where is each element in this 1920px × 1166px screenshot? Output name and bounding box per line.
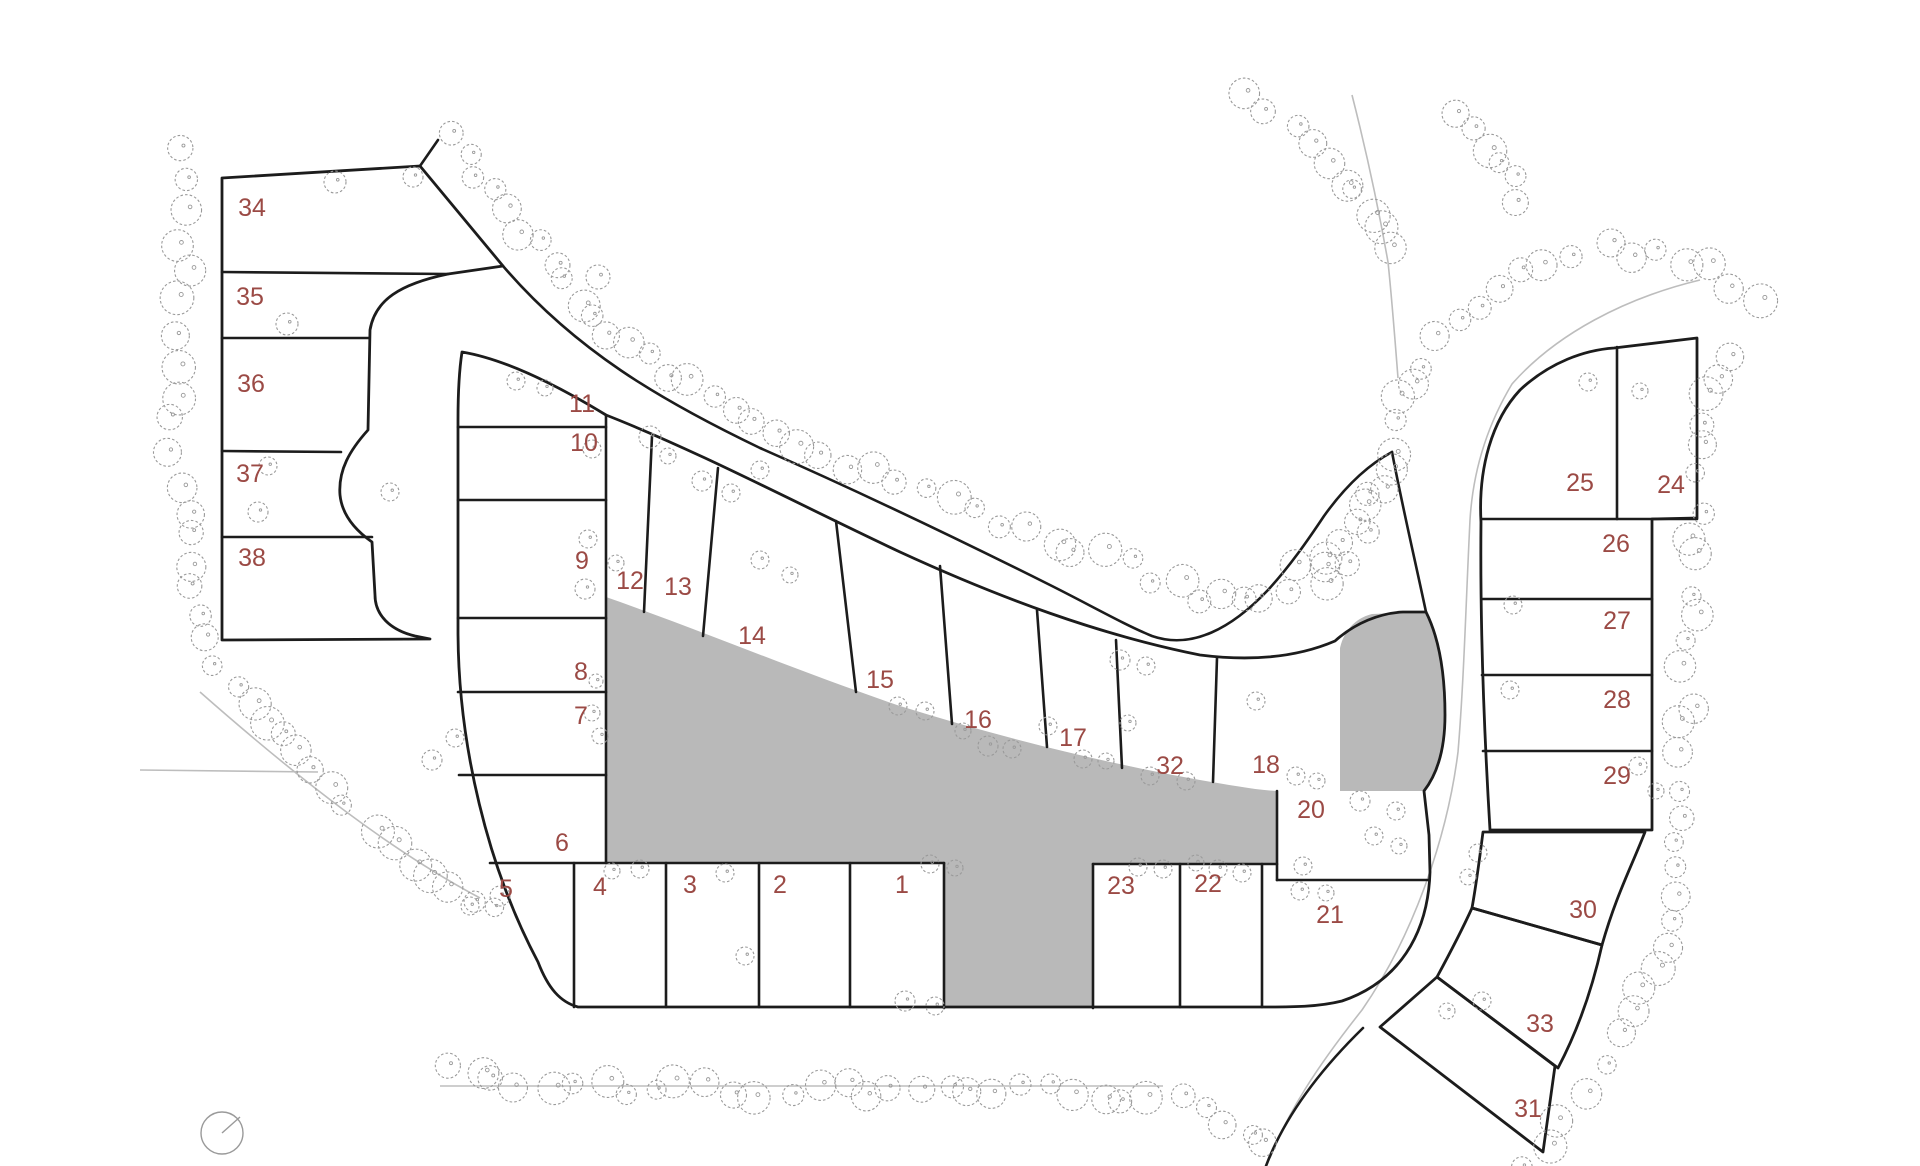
tree-dot-icon	[1522, 266, 1525, 269]
tree-dot-icon	[509, 204, 512, 207]
tree-icon	[1381, 380, 1414, 413]
tree-icon	[163, 382, 196, 415]
lot-label-28: 28	[1603, 686, 1631, 714]
tree-icon	[586, 265, 610, 289]
tree-dot-icon	[213, 662, 215, 664]
lot-label-36: 36	[237, 370, 265, 398]
tree-icon	[175, 168, 197, 190]
tree-icon	[1326, 530, 1352, 556]
tree-icon	[1196, 1098, 1216, 1118]
tree-icon	[805, 442, 831, 468]
tree-dot-icon	[397, 838, 401, 842]
parcel-divider-4	[420, 140, 438, 166]
lot-label-14: 14	[738, 622, 766, 650]
tree-icon	[1694, 248, 1726, 280]
tree-dot-icon	[1436, 331, 1439, 334]
tree-icon	[1665, 833, 1684, 852]
tree-dot-icon	[1328, 553, 1332, 557]
tree-dot-icon	[193, 562, 196, 565]
tree-dot-icon	[1331, 159, 1335, 163]
tree-icon	[751, 461, 769, 479]
tree-dot-icon	[1028, 522, 1031, 525]
tree-dot-icon	[1572, 253, 1575, 256]
tree-icon	[171, 195, 202, 226]
tree-dot-icon	[433, 757, 435, 759]
tree-dot-icon	[1693, 593, 1695, 595]
tree-dot-icon	[761, 467, 763, 469]
tree-dot-icon	[1075, 1090, 1079, 1094]
tree-icon	[1462, 117, 1485, 140]
tree-icon	[1468, 296, 1491, 319]
tree-icon	[1350, 489, 1381, 520]
tree-dot-icon	[380, 826, 384, 830]
tree-dot-icon	[594, 312, 597, 315]
tree-dot-icon	[851, 1078, 854, 1081]
tree-dot-icon	[1315, 139, 1318, 142]
lot-label-31: 31	[1514, 1095, 1542, 1123]
tree-icon	[1670, 806, 1694, 830]
tree-icon	[690, 1068, 719, 1097]
lot-label-6: 6	[555, 829, 569, 857]
tree-dot-icon	[1679, 748, 1683, 752]
lot-label-3: 3	[683, 871, 697, 899]
east-reserved-parcel	[1340, 612, 1445, 791]
tree-icon	[1512, 1157, 1533, 1166]
tree-dot-icon	[1185, 1092, 1188, 1095]
north-marker-needle	[222, 1117, 240, 1133]
lot-label-5: 5	[499, 875, 513, 903]
tree-icon	[592, 322, 619, 349]
lot-label-9: 9	[575, 547, 589, 575]
tree-icon	[422, 750, 442, 770]
tree-dot-icon	[206, 633, 209, 636]
tree-dot-icon	[610, 1076, 614, 1080]
tree-dot-icon	[1481, 304, 1484, 307]
tree-dot-icon	[1208, 1104, 1210, 1106]
tree-icon	[1442, 100, 1469, 127]
tree-dot-icon	[473, 151, 475, 153]
tree-icon	[1597, 229, 1625, 257]
tree-dot-icon	[1711, 259, 1715, 263]
tree-dot-icon	[1370, 529, 1373, 532]
tree-icon	[530, 230, 551, 251]
tree-icon	[917, 479, 936, 498]
lot-label-2: 2	[773, 871, 787, 899]
tree-icon	[1662, 910, 1683, 931]
tree-dot-icon	[1122, 1098, 1125, 1101]
tree-icon	[191, 624, 218, 651]
tree-icon	[882, 470, 906, 494]
tree-dot-icon	[1677, 864, 1679, 866]
tree-dot-icon	[474, 174, 477, 177]
tree-dot-icon	[1681, 788, 1683, 790]
tree-dot-icon	[1559, 1116, 1563, 1120]
tree-dot-icon	[1732, 352, 1735, 355]
tree-icon	[162, 351, 195, 384]
tree-dot-icon	[257, 699, 261, 703]
lot-label-10: 10	[570, 429, 598, 457]
parcel-divider-6	[1392, 452, 1426, 612]
tree-dot-icon	[184, 483, 188, 487]
tree-icon	[671, 364, 703, 396]
lot-label-11: 11	[569, 390, 595, 418]
tree-dot-icon	[628, 1091, 630, 1093]
tree-dot-icon	[1384, 222, 1388, 226]
lot-label-16: 16	[964, 706, 992, 734]
tree-icon	[1057, 1079, 1088, 1110]
tree-dot-icon	[181, 362, 185, 366]
tree-dot-icon	[1349, 181, 1353, 185]
tree-dot-icon	[391, 489, 393, 491]
tree-dot-icon	[1151, 580, 1153, 582]
tree-dot-icon	[298, 745, 302, 749]
tree-dot-icon	[497, 186, 500, 189]
tree-dot-icon	[270, 718, 274, 722]
site-plan-map: 1234567891011121314151617321820212223242…	[0, 0, 1920, 1166]
tree-icon	[498, 1073, 527, 1102]
tree-dot-icon	[675, 1076, 679, 1080]
tree-icon	[639, 343, 660, 364]
tree-icon	[297, 757, 323, 783]
tree-icon	[190, 605, 211, 626]
tree-icon	[835, 1069, 863, 1097]
lot-label-25: 25	[1566, 469, 1594, 497]
tree-dot-icon	[179, 292, 183, 296]
tree-icon	[503, 220, 533, 250]
tree-icon	[1206, 579, 1235, 608]
tree-icon	[1287, 115, 1308, 136]
tree-dot-icon	[1657, 246, 1660, 249]
tree-dot-icon	[1001, 523, 1004, 526]
tree-dot-icon	[738, 406, 741, 409]
tree-icon	[493, 194, 522, 223]
tree-icon	[1251, 99, 1276, 124]
tree-icon	[1123, 549, 1143, 569]
tree-dot-icon	[1396, 449, 1400, 453]
tree-icon	[316, 772, 348, 804]
tree-dot-icon	[1400, 391, 1404, 395]
tree-dot-icon	[240, 684, 242, 686]
tree-dot-icon	[778, 429, 781, 432]
tree-icon	[1704, 365, 1732, 393]
tree-icon	[439, 121, 463, 145]
tree-dot-icon	[492, 1074, 495, 1077]
tree-dot-icon	[177, 331, 180, 334]
tree-icon	[162, 230, 194, 262]
tree-icon	[1166, 564, 1199, 597]
lot-label-30: 30	[1569, 896, 1597, 924]
tree-dot-icon	[1670, 943, 1673, 946]
tree-icon	[1486, 275, 1513, 302]
tree-dot-icon	[1641, 983, 1645, 987]
tree-icon	[1044, 529, 1075, 560]
tree-dot-icon	[182, 144, 185, 147]
tree-icon	[202, 656, 222, 676]
tree-dot-icon	[471, 903, 473, 905]
tree-icon	[1420, 321, 1449, 350]
tree-icon	[1357, 199, 1390, 232]
tree-dot-icon	[334, 783, 338, 787]
lot-label-34: 34	[238, 194, 266, 222]
tree-icon	[1671, 249, 1703, 281]
tree-dot-icon	[1720, 375, 1723, 378]
lot-label-26: 26	[1602, 530, 1630, 558]
tree-dot-icon	[1290, 588, 1293, 591]
tree-icon	[1489, 153, 1509, 173]
tree-icon	[435, 1053, 460, 1078]
tree-icon	[1663, 737, 1693, 767]
tree-dot-icon	[285, 730, 288, 733]
lot-label-8: 8	[574, 658, 588, 686]
tree-dot-icon	[1687, 637, 1689, 639]
tree-dot-icon	[1683, 814, 1686, 817]
tree-icon	[1244, 1126, 1263, 1145]
tree-dot-icon	[976, 505, 978, 507]
lot-label-7: 7	[574, 702, 588, 730]
tree-icon	[381, 483, 399, 501]
tree-icon	[1682, 587, 1701, 606]
lot-label-20: 20	[1297, 796, 1325, 824]
lot-label-15: 15	[866, 666, 894, 694]
tree-dot-icon	[193, 529, 196, 532]
tree-dot-icon	[1500, 159, 1502, 161]
tree-icon	[1411, 359, 1432, 380]
tree-dot-icon	[795, 1092, 798, 1095]
tree-icon	[1744, 284, 1778, 318]
lot-label-13: 13	[664, 573, 692, 601]
tree-dot-icon	[1367, 500, 1371, 504]
lot-label-21: 21	[1316, 901, 1344, 929]
road-edge-line-4	[200, 692, 480, 898]
tree-icon	[1645, 239, 1666, 260]
tree-icon	[446, 729, 464, 747]
tree-icon	[551, 268, 572, 289]
tree-icon	[568, 290, 600, 322]
tree-icon	[1509, 258, 1533, 282]
tree-dot-icon	[1588, 1089, 1592, 1093]
tree-dot-icon	[192, 266, 196, 270]
tree-icon	[1598, 1056, 1616, 1074]
lot-label-23: 23	[1107, 872, 1135, 900]
tree-dot-icon	[1327, 562, 1331, 566]
tree-icon	[875, 1076, 900, 1101]
tree-icon	[1375, 232, 1406, 263]
tree-dot-icon	[716, 393, 719, 396]
tree-dot-icon	[1052, 1081, 1054, 1083]
tree-icon	[704, 386, 725, 407]
tree-dot-icon	[1254, 1132, 1256, 1134]
tree-dot-icon	[180, 240, 184, 244]
tree-dot-icon	[1369, 490, 1372, 493]
tree-icon	[1664, 651, 1695, 682]
tree-dot-icon	[819, 451, 822, 454]
tree-icon	[1092, 1085, 1121, 1114]
lot-label-37: 37	[236, 460, 264, 488]
tree-icon	[271, 722, 295, 746]
tree-dot-icon	[1300, 123, 1303, 126]
tree-icon	[485, 179, 506, 200]
tree-dot-icon	[542, 237, 544, 239]
tree-icon	[177, 574, 202, 599]
tree-icon	[1343, 180, 1362, 199]
tree-dot-icon	[1689, 260, 1693, 264]
tree-icon	[1460, 869, 1476, 885]
tree-dot-icon	[1246, 595, 1249, 598]
tree-icon	[1010, 1074, 1031, 1095]
tree-icon	[1661, 882, 1690, 911]
tree-dot-icon	[1660, 963, 1664, 967]
lot-label-22: 22	[1194, 870, 1222, 898]
tree-dot-icon	[1457, 109, 1460, 112]
lot-label-17: 17	[1059, 724, 1087, 752]
tree-dot-icon	[1623, 1028, 1626, 1031]
tree-icon	[1653, 933, 1682, 962]
road-edge-line-2	[140, 770, 318, 772]
tree-icon	[937, 480, 971, 514]
tree-dot-icon	[1678, 892, 1681, 895]
tree-icon	[251, 707, 285, 741]
tree-dot-icon	[1415, 379, 1419, 383]
tree-dot-icon	[823, 1080, 827, 1084]
tree-icon	[1171, 1084, 1195, 1108]
tree-dot-icon	[343, 802, 345, 804]
tree-dot-icon	[1475, 125, 1478, 128]
tree-dot-icon	[799, 441, 803, 445]
tree-dot-icon	[1185, 576, 1189, 580]
tree-dot-icon	[1633, 253, 1637, 257]
tree-dot-icon	[1349, 560, 1352, 563]
tree-icon	[462, 167, 483, 188]
block-east-24-29-fill	[1481, 338, 1697, 830]
tree-dot-icon	[1297, 560, 1301, 564]
tree-icon	[400, 849, 432, 881]
parcel-divider-2	[222, 451, 341, 452]
lot-label-12: 12	[616, 567, 644, 595]
tree-icon	[1012, 512, 1041, 541]
lot-label-33: 33	[1526, 1010, 1554, 1038]
tree-dot-icon	[563, 275, 566, 278]
tree-icon	[1502, 190, 1528, 216]
tree-icon	[1357, 521, 1379, 543]
tree-dot-icon	[600, 273, 603, 276]
tree-dot-icon	[453, 129, 456, 132]
tree-dot-icon	[1148, 1093, 1152, 1097]
tree-dot-icon	[1552, 1141, 1556, 1145]
tree-dot-icon	[1492, 146, 1496, 150]
tree-dot-icon	[574, 1080, 576, 1082]
tree-icon	[738, 409, 764, 435]
tree-icon	[1641, 952, 1675, 986]
lot-label-35: 35	[236, 283, 264, 311]
tree-icon	[1716, 343, 1743, 370]
tree-icon	[1571, 1079, 1601, 1109]
tree-dot-icon	[181, 393, 185, 397]
tree-dot-icon	[520, 230, 524, 234]
tree-dot-icon	[449, 1062, 452, 1065]
tree-dot-icon	[1386, 485, 1389, 488]
tree-icon	[1280, 550, 1311, 581]
tree-icon	[1188, 590, 1211, 613]
tree-icon	[1673, 523, 1705, 555]
tree-dot-icon	[1353, 186, 1355, 188]
tree-dot-icon	[1608, 1062, 1610, 1064]
tree-icon	[461, 144, 481, 164]
tree-icon	[1089, 533, 1122, 566]
tree-icon	[239, 688, 271, 720]
tree-dot-icon	[956, 492, 960, 496]
tree-icon	[1617, 243, 1646, 272]
tree-icon	[780, 430, 814, 464]
tree-dot-icon	[1422, 366, 1424, 368]
lot-label-4: 4	[593, 873, 607, 901]
tree-dot-icon	[1705, 510, 1708, 513]
tree-dot-icon	[849, 465, 852, 468]
tree-dot-icon	[631, 338, 635, 342]
tree-icon	[179, 520, 203, 544]
tree-icon	[783, 1085, 804, 1106]
tree-dot-icon	[1393, 243, 1397, 247]
lot-label-29: 29	[1603, 762, 1631, 790]
tree-dot-icon	[1469, 874, 1471, 876]
tree-dot-icon	[1675, 839, 1677, 841]
tree-icon	[1299, 130, 1327, 158]
site-plan-canvas: 1234567891011121314151617321820212223242…	[0, 0, 1920, 1166]
tree-dot-icon	[191, 582, 194, 585]
tree-icon	[331, 795, 351, 815]
tree-icon	[616, 1084, 636, 1104]
tree-icon	[1714, 274, 1743, 303]
tree-dot-icon	[1224, 1121, 1227, 1124]
tree-dot-icon	[1731, 284, 1735, 288]
tree-dot-icon	[689, 374, 693, 378]
tree-dot-icon	[735, 1091, 738, 1094]
tree-dot-icon	[586, 301, 590, 305]
tree-icon	[168, 135, 193, 160]
tree-dot-icon	[1461, 316, 1464, 319]
tree-icon	[1665, 857, 1686, 878]
lot-label-24: 24	[1657, 471, 1685, 499]
tree-dot-icon	[706, 1078, 709, 1081]
tree-icon	[909, 1076, 935, 1102]
tree-icon	[988, 516, 1010, 538]
tree-icon	[1473, 134, 1506, 167]
tree-dot-icon	[875, 463, 879, 467]
tree-icon	[1276, 580, 1300, 604]
tree-icon	[1314, 148, 1344, 178]
tree-dot-icon	[1699, 610, 1703, 614]
tree-dot-icon	[928, 485, 930, 487]
tree-dot-icon	[1517, 173, 1519, 175]
tree-dot-icon	[202, 612, 205, 615]
tree-icon	[1676, 631, 1695, 650]
tree-icon	[1371, 476, 1398, 503]
tree-dot-icon	[1544, 260, 1548, 264]
tree-icon	[1208, 1111, 1236, 1139]
lot-label-1: 1	[895, 871, 909, 899]
tree-dot-icon	[651, 350, 654, 353]
tree-dot-icon	[896, 478, 899, 481]
tree-dot-icon	[993, 1089, 996, 1092]
tree-dot-icon	[1329, 579, 1333, 583]
tree-dot-icon	[312, 766, 315, 769]
tree-icon	[161, 322, 189, 350]
tree-icon	[545, 253, 570, 278]
tree-dot-icon	[1636, 1006, 1640, 1010]
tree-icon	[281, 735, 311, 765]
tree-icon	[153, 438, 181, 466]
tree-dot-icon	[1682, 661, 1686, 665]
tree-dot-icon	[188, 176, 191, 179]
